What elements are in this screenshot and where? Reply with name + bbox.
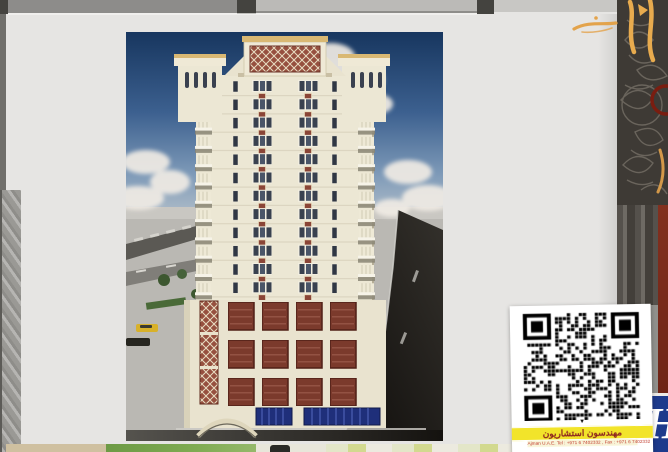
red-seal-circle [652, 86, 668, 114]
storefront-glass-left [256, 408, 292, 425]
podium [184, 300, 386, 438]
podium-screen-panels [228, 302, 364, 406]
topbar-scroll-handle-left[interactable] [237, 0, 256, 14]
page-left-edge [0, 14, 6, 190]
foreground-road [126, 430, 443, 441]
topbar-track-left [8, 0, 237, 13]
topbar-highlight-line [8, 13, 477, 15]
bottom-strip-tan [6, 444, 106, 452]
qr-card: ▼ مهندسون استشاريون Ajman U.A.E. Tel : +… [510, 304, 654, 452]
band-maroon-strip [658, 205, 668, 395]
corner-turret-left [174, 54, 226, 122]
screenshot-stage: H ▼ مهندسون استشاريون Ajman U.A.E. Tel :… [0, 0, 668, 452]
topbar-corner-square [0, 0, 8, 14]
company-contact-line: Ajman U.A.E. Tel : +971 6 7402332 , Fax … [527, 439, 637, 447]
page-left-edge-texture [0, 190, 21, 452]
corner-turret-right [338, 54, 390, 122]
bottom-strip-car-silhouette [270, 445, 290, 452]
topbar-track-middle [256, 0, 477, 13]
topbar-scroll-handle-right[interactable] [477, 0, 494, 14]
storefront-glass-right [304, 408, 380, 425]
bottom-strip-green [106, 444, 256, 452]
building-rendering-image [126, 32, 443, 441]
building [174, 36, 390, 438]
bottom-strip-light [256, 444, 326, 452]
qr-code-canvas [518, 309, 644, 421]
